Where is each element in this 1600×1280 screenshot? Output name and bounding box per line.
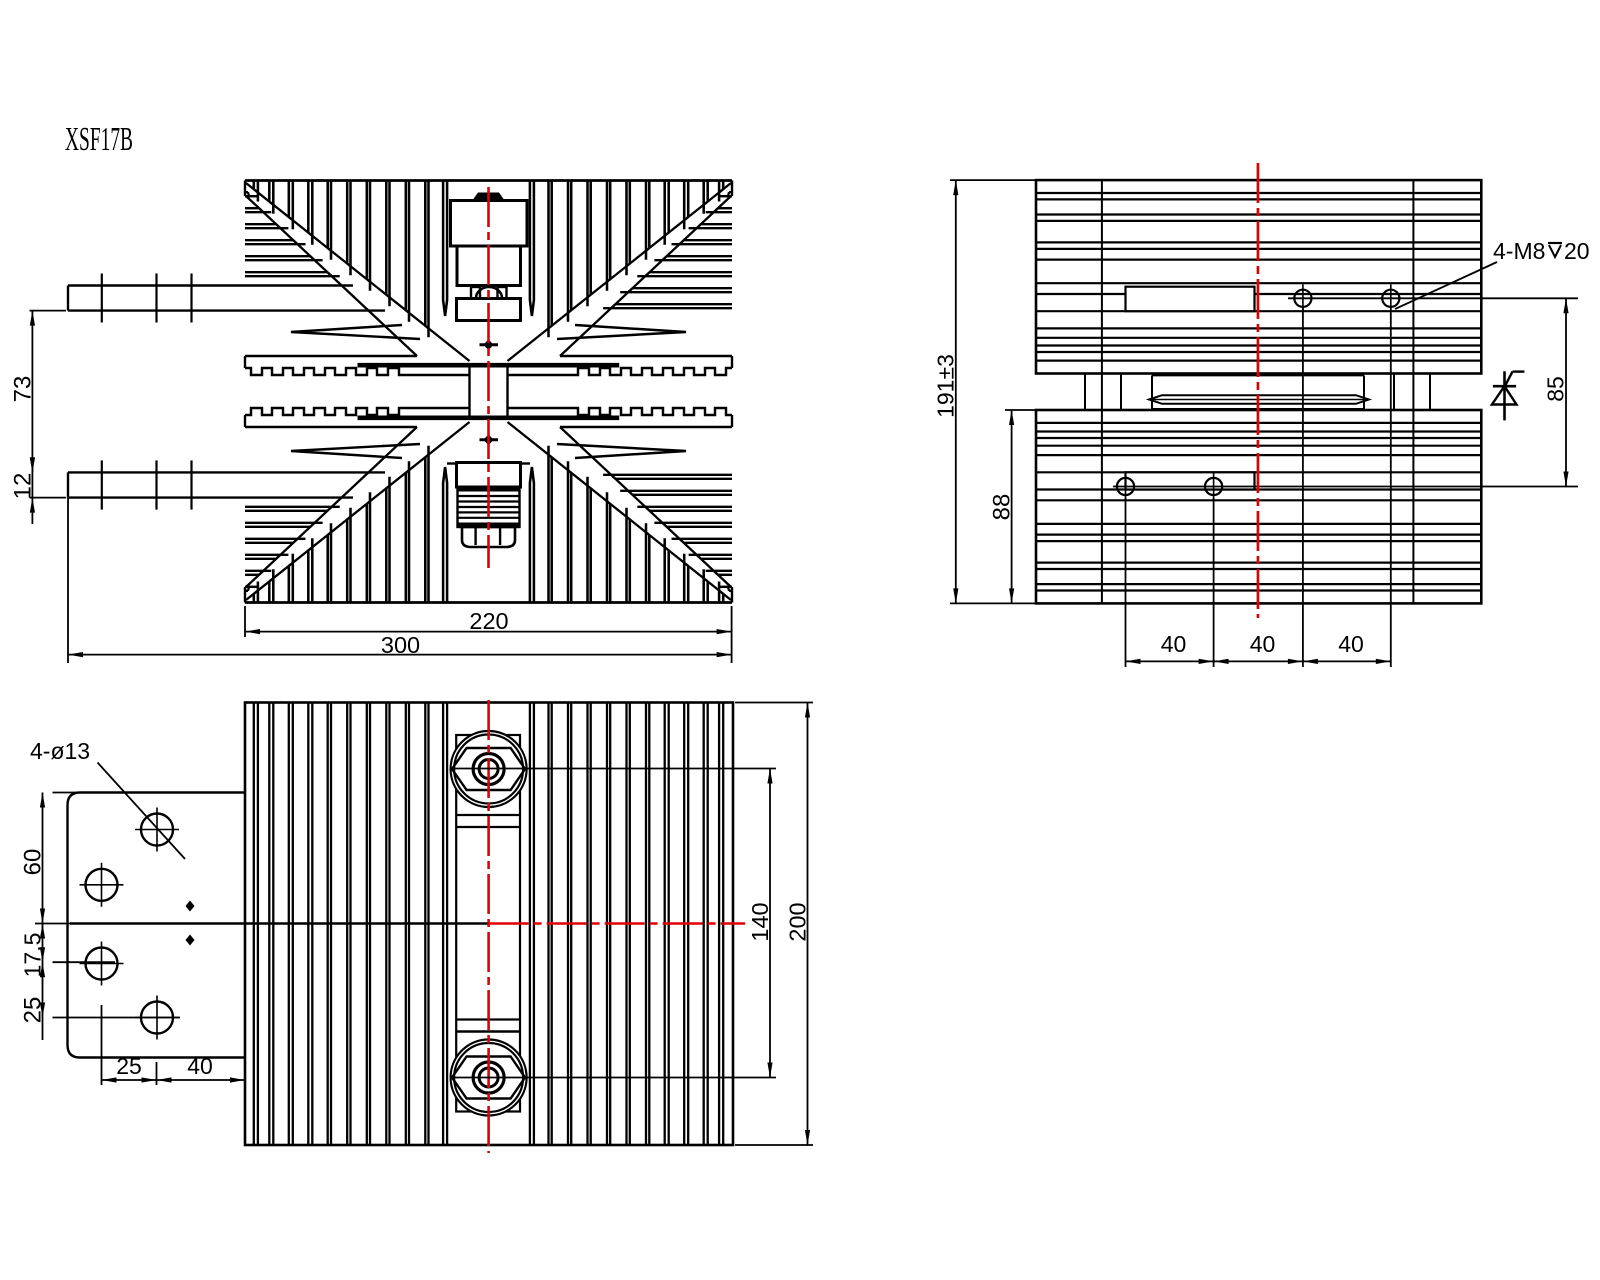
svg-text:73: 73 [10,376,37,403]
svg-text:12: 12 [10,473,37,500]
svg-text:40: 40 [187,1053,213,1079]
svg-text:4-ø13: 4-ø13 [30,738,90,764]
svg-text:20: 20 [1564,238,1590,264]
svg-text:140: 140 [747,902,773,941]
svg-text:220: 220 [469,608,508,634]
svg-text:88: 88 [989,494,1016,521]
svg-text:XSF17B: XSF17B [65,121,133,158]
svg-text:60: 60 [20,849,47,876]
svg-text:25: 25 [20,997,47,1024]
svg-text:191±3: 191±3 [933,354,959,418]
svg-text:40: 40 [1161,631,1187,657]
svg-text:40: 40 [1338,631,1364,657]
svg-text:200: 200 [785,902,811,941]
svg-text:85: 85 [1543,376,1569,402]
svg-text:300: 300 [381,632,420,658]
svg-text:25: 25 [116,1053,142,1079]
svg-text:40: 40 [1250,631,1276,657]
svg-text:4-M8: 4-M8 [1493,238,1545,264]
